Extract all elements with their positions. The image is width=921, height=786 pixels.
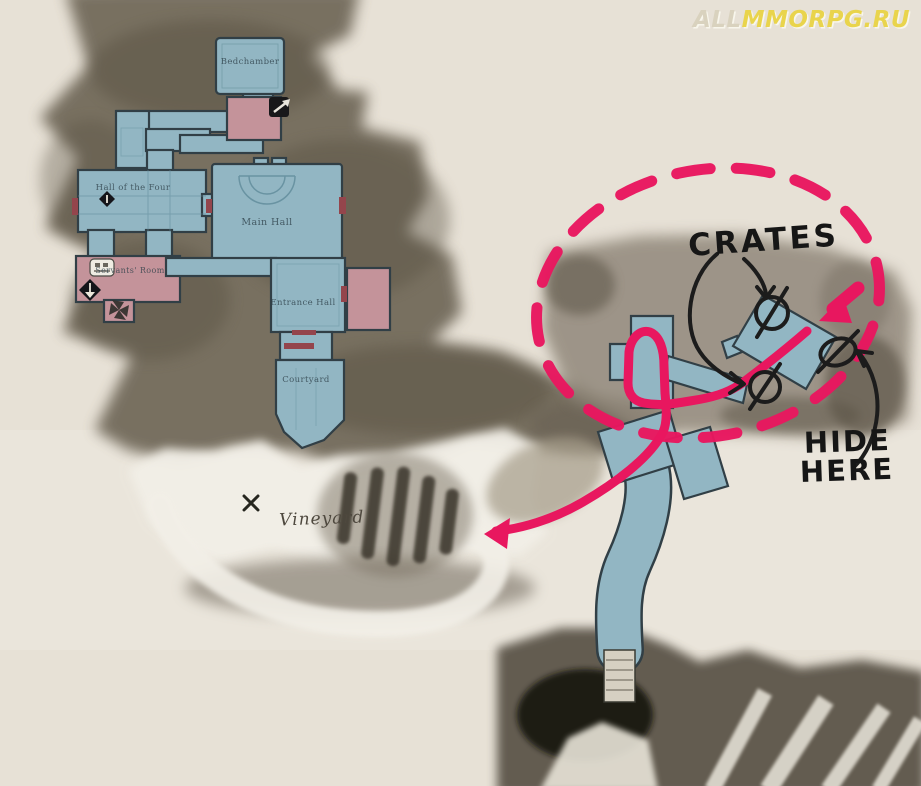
watermark-text: ALLMMORPG.RU: [691, 7, 910, 33]
room-unexplored-east: [347, 268, 390, 330]
room-main-hall: [212, 164, 342, 262]
room-label-main-hall: Main Hall: [241, 217, 292, 228]
watermark: ALLMMORPG.RU ALLMMORPG.RU: [691, 7, 912, 35]
room-label-courtyard: Courtyard: [282, 375, 330, 385]
room-label-entrance-hall: Entrance Hall: [270, 298, 335, 308]
door-marker: [341, 286, 347, 302]
bridge: [604, 650, 635, 702]
door-marker: [339, 197, 346, 214]
map-canvas: Bedchamber Hall of the Four Main Hall Se…: [0, 0, 921, 786]
room-hall-of-the-four: [78, 170, 206, 232]
door-marker: [206, 199, 212, 213]
door-marker: [72, 198, 78, 215]
door-marker: [292, 330, 316, 335]
terrain-shade: [90, 20, 330, 120]
room-label-bedchamber: Bedchamber: [221, 57, 280, 67]
vineyard-label: Vineyard: [279, 508, 365, 531]
door-marker: [284, 343, 314, 349]
stairs-up-icon: [269, 97, 290, 117]
hide-label-line2: HERE: [799, 452, 894, 489]
game-map-screenshot: Bedchamber Hall of the Four Main Hall Se…: [0, 0, 921, 786]
room-label-hall-of-the-four: Hall of the Four: [96, 183, 171, 193]
room-corridor-south: [166, 258, 276, 276]
room-label-servants-room: Servants' Room: [95, 266, 164, 275]
room-entrance-hall: [271, 258, 345, 332]
